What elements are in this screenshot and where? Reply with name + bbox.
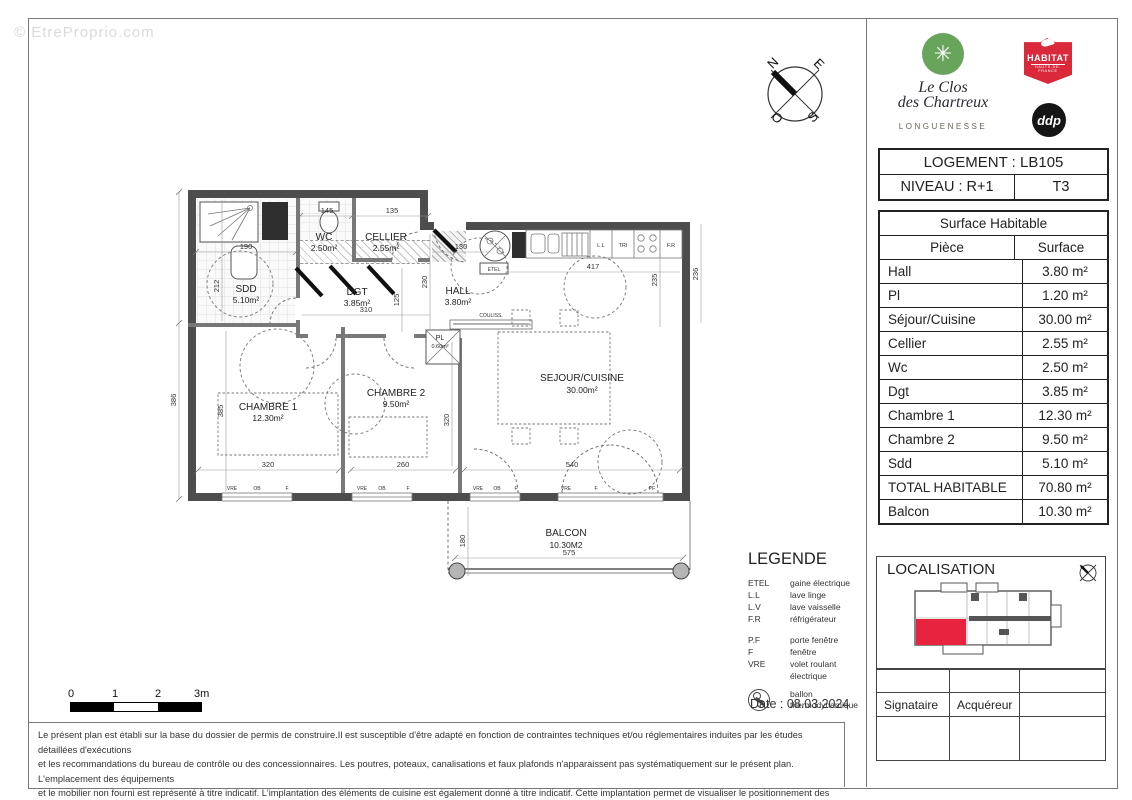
- surface-table-title: Surface Habitable: [880, 212, 1107, 236]
- localisation-box: LOCALISATION: [876, 556, 1106, 670]
- svg-text:0.60m²: 0.60m²: [431, 344, 448, 350]
- svg-text:235: 235: [650, 274, 659, 287]
- date-label: Date : 08.03.2024: [750, 697, 849, 711]
- svg-text:2.55m²: 2.55m²: [373, 243, 400, 253]
- svg-text:VRE: VRE: [227, 486, 238, 492]
- table-row: Séjour/Cuisine30.00 m²: [880, 308, 1107, 332]
- duct-block: [262, 202, 288, 240]
- balcony-post: [449, 563, 465, 579]
- building-plan: [879, 579, 1103, 667]
- room-chambre2: CHAMBRE 2: [367, 388, 426, 399]
- acquereur-cell: [950, 717, 1020, 760]
- surface-table: Surface Habitable Pièce Surface Hall3.80…: [878, 210, 1109, 525]
- sliding-door: [450, 320, 532, 329]
- svg-text:OB: OB: [253, 486, 261, 492]
- room-cellier: CELLIER: [365, 232, 407, 243]
- svg-text:2.50m²: 2.50m²: [311, 243, 338, 253]
- svg-text:9.50m²: 9.50m²: [383, 399, 410, 409]
- svg-text:VRE: VRE: [357, 486, 368, 492]
- scale-bar: 0 1 2 3m: [60, 688, 220, 716]
- table-row: Sdd5.10 m²: [880, 452, 1107, 476]
- table-row: Pl1.20 m²: [880, 284, 1107, 308]
- logement-label: LOGEMENT : LB105: [880, 150, 1107, 175]
- svg-text:OB: OB: [493, 486, 501, 492]
- watermark: © EtreProprio.com: [14, 24, 155, 41]
- bed-chambre2: [349, 417, 427, 457]
- clearance-circles: [207, 238, 662, 494]
- flower-icon: ✳: [934, 41, 952, 67]
- signataire-cell: [877, 717, 950, 760]
- project-name: Le Clos des Chartreux: [872, 80, 1014, 110]
- table-row: Chambre 29.50 m²: [880, 428, 1107, 452]
- doors: [270, 230, 658, 493]
- svg-text:3.85m²: 3.85m²: [344, 298, 371, 308]
- etel-label: ETEL: [488, 267, 501, 273]
- dishwasher: [562, 233, 588, 256]
- svg-text:5.10m²: 5.10m²: [233, 295, 260, 305]
- room-dgt: DGT: [346, 287, 367, 298]
- svg-text:125: 125: [392, 294, 401, 307]
- signature-table: Signataire Acquéreur: [876, 668, 1106, 761]
- svg-text:PF: PF: [649, 486, 655, 492]
- compass-south: S: [804, 108, 821, 125]
- svg-text:230: 230: [420, 276, 429, 289]
- room-balcon: BALCON: [545, 528, 586, 539]
- svg-text:320: 320: [262, 460, 275, 469]
- habitat-logo: HABITAT HAUTS-DE-FRANCE: [1024, 38, 1072, 84]
- svg-text:236: 236: [691, 268, 700, 281]
- room-pl: PL: [436, 335, 445, 342]
- hob: [638, 235, 656, 252]
- legend-title: LEGENDE: [748, 550, 868, 569]
- svg-text:385: 385: [216, 405, 225, 418]
- compass-rose: N E O S: [752, 48, 838, 134]
- svg-text:540: 540: [566, 460, 579, 469]
- svg-text:417: 417: [587, 262, 600, 271]
- svg-text:12.30m²: 12.30m²: [252, 413, 283, 423]
- kitchen-counter: L.L TRI F.R: [512, 230, 682, 258]
- table-row-total: TOTAL HABITABLE70.80 m²: [880, 476, 1107, 500]
- svg-text:145: 145: [321, 206, 334, 215]
- sliding-door-label: COULISS.: [479, 313, 502, 319]
- svg-text:190: 190: [240, 242, 253, 251]
- compass-east: E: [811, 55, 828, 72]
- signataire-label: Signataire: [877, 693, 950, 717]
- room-sejour: SEJOUR/CUISINE: [540, 373, 624, 384]
- table-row: Wc2.50 m²: [880, 356, 1107, 380]
- floor-plan: ETEL L.L TRI F.R: [170, 182, 715, 602]
- room-wc: WC: [316, 232, 333, 243]
- table-row: Cellier2.55 m²: [880, 332, 1107, 356]
- room-hall: HALL: [445, 286, 470, 297]
- ddp-logo: ddp: [1032, 103, 1066, 137]
- svg-text:180: 180: [458, 535, 467, 548]
- svg-text:10.30M2: 10.30M2: [549, 540, 582, 550]
- plan-sheet: © EtreProprio.com N E O S: [0, 0, 1132, 800]
- svg-text:130: 130: [455, 242, 468, 251]
- compass-west: O: [768, 109, 786, 127]
- svg-text:F: F: [406, 486, 409, 492]
- table-row: Chambre 112.30 m²: [880, 404, 1107, 428]
- legend: LEGENDE ETELgaine électrique L.Llave lin…: [748, 550, 868, 711]
- sink: [531, 234, 545, 253]
- table-row: Dgt3.85 m²: [880, 380, 1107, 404]
- compass-north: N: [764, 54, 781, 71]
- shower: [200, 202, 258, 242]
- svg-text:F: F: [594, 486, 597, 492]
- svg-text:320: 320: [442, 414, 451, 427]
- tri-label: TRI: [619, 243, 628, 249]
- project-city: LONGUENESSE: [872, 122, 1014, 131]
- svg-text:212: 212: [212, 280, 221, 293]
- svg-text:OB: OB: [378, 486, 386, 492]
- svg-text:386: 386: [170, 394, 178, 407]
- acquereur-label: Acquéreur: [950, 693, 1020, 717]
- localisation-title: LOCALISATION: [887, 561, 995, 578]
- svg-text:VRE: VRE: [561, 486, 572, 492]
- svg-text:VRE: VRE: [473, 486, 484, 492]
- niveau-label: NIVEAU : R+1: [880, 175, 1015, 199]
- fridge-label: F.R: [667, 243, 675, 249]
- svg-text:260: 260: [397, 460, 410, 469]
- compass-needle: [773, 72, 795, 94]
- balcony-post: [673, 563, 689, 579]
- scale-bar-segments: [70, 702, 202, 712]
- unit-info-table: LOGEMENT : LB105 NIVEAU : R+1 T3: [878, 148, 1109, 201]
- disclaimer: Le présent plan est établi sur la base d…: [28, 722, 845, 787]
- washer-label: L.L: [597, 243, 605, 249]
- window-labels: VRE OB F VRE OB F VRE OB F VRE F PF: [227, 486, 655, 492]
- svg-text:3.80m²: 3.80m²: [445, 297, 472, 307]
- svg-text:F: F: [514, 486, 517, 492]
- clos-chartreux-logo: ✳: [922, 33, 964, 75]
- highlighted-unit: [916, 619, 966, 645]
- svg-text:135: 135: [386, 206, 399, 215]
- room-chambre1: CHAMBRE 1: [239, 402, 298, 413]
- table-row: Hall3.80 m²: [880, 260, 1107, 284]
- svg-text:F: F: [285, 486, 288, 492]
- room-sdd: SDD: [235, 284, 256, 295]
- type-label: T3: [1015, 175, 1107, 199]
- svg-text:30.00m²: 30.00m²: [566, 385, 597, 395]
- table-row: Balcon10.30 m²: [880, 500, 1107, 523]
